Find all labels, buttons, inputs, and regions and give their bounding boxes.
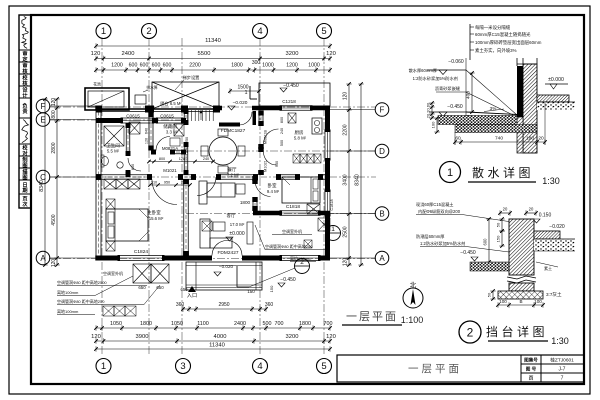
svg-text:4500: 4500 xyxy=(51,214,57,225)
svg-text:隔台 6.5 M²: 隔台 6.5 M² xyxy=(160,100,182,107)
svg-text:主卧室: 主卧室 xyxy=(147,209,161,216)
svg-text:2200: 2200 xyxy=(189,63,201,69)
svg-text:240: 240 xyxy=(280,128,284,134)
svg-text:1: 1 xyxy=(447,167,453,179)
svg-text:950: 950 xyxy=(164,181,170,185)
svg-text:1:2防水砂浆加5%防水剂: 1:2防水砂浆加5%防水剂 xyxy=(413,75,458,82)
svg-text:1050: 1050 xyxy=(171,321,183,327)
svg-text:2400: 2400 xyxy=(234,321,246,327)
svg-text:100mm厚碎砖垫层宽出面层60mm: 100mm厚碎砖垫层宽出面层60mm xyxy=(475,39,542,46)
svg-text:J-7: J-7 xyxy=(559,367,566,373)
svg-text:120: 120 xyxy=(145,138,149,144)
svg-text:150: 150 xyxy=(269,285,274,292)
svg-text:400: 400 xyxy=(466,91,472,99)
svg-text:2: 2 xyxy=(467,326,474,340)
svg-text:C0615: C0615 xyxy=(160,114,174,119)
svg-text:散水厚60mm厚: 散水厚60mm厚 xyxy=(409,67,437,74)
svg-text:240: 240 xyxy=(203,157,209,161)
svg-text:600: 600 xyxy=(483,238,488,246)
svg-text:100: 100 xyxy=(431,121,436,128)
svg-text:每隔一米设分隔缝: 每隔一米设分隔缝 xyxy=(475,24,511,31)
svg-text:−0.450: −0.450 xyxy=(280,277,296,283)
svg-text:950: 950 xyxy=(275,161,279,167)
svg-text:M0821A: M0821A xyxy=(162,146,178,151)
svg-text:120: 120 xyxy=(326,51,336,57)
svg-text:2: 2 xyxy=(300,259,304,266)
svg-text:300: 300 xyxy=(252,60,261,66)
svg-text:桂ZTJ0601: 桂ZTJ0601 xyxy=(550,357,574,364)
svg-text:核: 核 xyxy=(22,67,28,75)
svg-text:C1818: C1818 xyxy=(286,204,300,210)
svg-text:800: 800 xyxy=(280,117,284,123)
svg-text:20: 20 xyxy=(426,108,431,113)
svg-text:650: 650 xyxy=(181,287,189,292)
svg-text:素土: 素土 xyxy=(544,265,552,271)
svg-text:3.3 M²: 3.3 M² xyxy=(166,130,179,135)
svg-text:60mm厚C15混凝土随捣随光: 60mm厚C15混凝土随捣随光 xyxy=(475,31,531,38)
svg-text:3900: 3900 xyxy=(136,334,149,340)
svg-text:计: 计 xyxy=(22,91,28,99)
svg-text:8340: 8340 xyxy=(355,174,361,186)
svg-text:对: 对 xyxy=(22,149,28,157)
svg-text:240: 240 xyxy=(181,181,187,185)
svg-text:100: 100 xyxy=(499,299,507,304)
svg-text:4: 4 xyxy=(257,361,262,372)
svg-text:5500: 5500 xyxy=(198,51,211,57)
svg-text:0.150: 0.150 xyxy=(539,213,552,219)
svg-text:图集号: 图集号 xyxy=(524,357,538,364)
svg-text:1100: 1100 xyxy=(197,321,209,327)
svg-text:1200: 1200 xyxy=(111,63,123,69)
svg-text:1800: 1800 xyxy=(140,321,152,327)
svg-text:3:7灰土: 3:7灰土 xyxy=(546,291,562,298)
svg-text:1:30: 1:30 xyxy=(551,336,569,346)
svg-text:20: 20 xyxy=(503,207,508,212)
svg-text:2950: 2950 xyxy=(218,302,229,308)
svg-text:D: D xyxy=(379,147,385,156)
svg-text:核: 核 xyxy=(22,79,28,87)
svg-text:3400: 3400 xyxy=(343,174,349,185)
svg-text:1:100: 1:100 xyxy=(401,315,424,325)
svg-text:次: 次 xyxy=(22,200,28,208)
svg-text:−0.060: −0.060 xyxy=(448,59,464,65)
svg-text:C1818: C1818 xyxy=(330,199,334,210)
svg-text:17.0 M²: 17.0 M² xyxy=(230,222,245,227)
svg-text:20: 20 xyxy=(426,113,431,118)
svg-text:700: 700 xyxy=(324,321,333,327)
svg-text:740: 740 xyxy=(495,136,503,142)
svg-text:离地100mm: 离地100mm xyxy=(57,289,79,295)
svg-text:C0615: C0615 xyxy=(126,114,140,119)
svg-text:650: 650 xyxy=(156,285,164,290)
svg-text:20: 20 xyxy=(529,207,534,212)
svg-text:防潮层60mm厚: 防潮层60mm厚 xyxy=(416,233,444,240)
svg-text:600: 600 xyxy=(140,63,149,69)
svg-text:1: 1 xyxy=(101,26,106,37)
svg-text:60: 60 xyxy=(426,102,431,107)
svg-text:600: 600 xyxy=(129,63,138,69)
svg-text:图: 图 xyxy=(22,173,27,181)
svg-text:500: 500 xyxy=(263,321,272,327)
svg-text:150: 150 xyxy=(496,235,501,242)
svg-text:期: 期 xyxy=(22,186,27,194)
svg-text:责: 责 xyxy=(22,107,27,115)
svg-text:5.5 M²: 5.5 M² xyxy=(107,149,120,154)
svg-text:800: 800 xyxy=(51,110,57,119)
svg-text:离地100mm: 离地100mm xyxy=(57,308,79,314)
svg-text:7: 7 xyxy=(561,376,564,382)
svg-text:−0.020: −0.020 xyxy=(233,100,248,106)
svg-text:−0.020: −0.020 xyxy=(219,264,234,269)
svg-text:A: A xyxy=(40,254,46,263)
svg-text:120: 120 xyxy=(51,259,57,268)
svg-text:50: 50 xyxy=(487,292,492,297)
svg-text:500: 500 xyxy=(280,140,284,146)
svg-text:2800: 2800 xyxy=(51,142,57,153)
svg-text:图: 图 xyxy=(22,161,27,169)
svg-text:2400: 2400 xyxy=(122,51,135,57)
svg-text:8340: 8340 xyxy=(39,180,45,192)
svg-text:11340: 11340 xyxy=(209,343,225,349)
svg-text:M1021: M1021 xyxy=(264,160,268,172)
svg-text:素土夯实，向外坡3%: 素土夯实，向外坡3% xyxy=(475,47,517,54)
svg-text:120: 120 xyxy=(91,334,101,340)
svg-text:梯步设置: 梯步设置 xyxy=(183,74,200,81)
svg-text:±0.000: ±0.000 xyxy=(548,77,564,83)
svg-text:客厅: 客厅 xyxy=(227,212,236,219)
svg-text:180: 180 xyxy=(526,136,534,142)
svg-text:150: 150 xyxy=(247,289,255,294)
svg-text:1: 1 xyxy=(331,226,335,233)
svg-text:1200: 1200 xyxy=(286,63,298,69)
svg-text:4: 4 xyxy=(257,26,262,37)
svg-text:FDM2427: FDM2427 xyxy=(217,250,238,256)
svg-text:1000: 1000 xyxy=(262,63,274,69)
svg-text:5: 5 xyxy=(321,26,326,37)
svg-text:3: 3 xyxy=(180,361,185,372)
svg-text:空调管洞Φ80 距中高地250: 空调管洞Φ80 距中高地250 xyxy=(57,298,105,304)
svg-text:B: B xyxy=(519,299,522,304)
svg-text:花池: 花池 xyxy=(93,82,101,87)
svg-text:4000: 4000 xyxy=(214,334,227,340)
svg-text:−0.450: −0.450 xyxy=(460,250,476,256)
svg-text:1050: 1050 xyxy=(110,321,122,327)
svg-text:1: 1 xyxy=(101,361,106,372)
svg-text:3200: 3200 xyxy=(286,334,299,340)
svg-text:内配Φ6纵筋双向@200: 内配Φ6纵筋双向@200 xyxy=(418,208,461,215)
svg-text:−0.450: −0.450 xyxy=(447,104,463,110)
svg-text:11340: 11340 xyxy=(205,38,221,44)
svg-text:C1218: C1218 xyxy=(282,99,296,104)
svg-text:空调室外机: 空调室外机 xyxy=(282,228,302,234)
svg-text:120: 120 xyxy=(343,258,349,267)
svg-text:1420: 1420 xyxy=(185,147,189,155)
svg-text:250: 250 xyxy=(185,137,189,143)
svg-text:±0.000: ±0.000 xyxy=(229,231,244,237)
svg-text:800: 800 xyxy=(159,157,165,161)
svg-text:20: 20 xyxy=(538,136,544,142)
svg-text:600: 600 xyxy=(152,63,161,69)
svg-text:15.6 M²: 15.6 M² xyxy=(149,216,164,221)
svg-text:定: 定 xyxy=(21,55,28,63)
svg-text:北: 北 xyxy=(410,281,417,289)
svg-text:A: A xyxy=(379,254,385,263)
svg-text:入口: 入口 xyxy=(187,292,197,299)
svg-text:50: 50 xyxy=(496,222,501,227)
svg-text:360: 360 xyxy=(265,302,274,308)
svg-text:1800: 1800 xyxy=(299,321,311,327)
svg-text:一层平面: 一层平面 xyxy=(346,310,398,323)
svg-text:1280: 1280 xyxy=(179,157,187,161)
svg-text:现浇60厚C15混凝土: 现浇60厚C15混凝土 xyxy=(416,201,453,208)
svg-text:一层平面: 一层平面 xyxy=(408,363,462,375)
svg-text:640: 640 xyxy=(145,128,149,134)
svg-text:F: F xyxy=(380,105,385,114)
svg-text:3200: 3200 xyxy=(286,51,299,57)
svg-text:空调室外机: 空调室外机 xyxy=(103,270,123,276)
svg-text:卧室: 卧室 xyxy=(268,182,277,189)
svg-text:2500: 2500 xyxy=(343,226,349,237)
svg-text:5.8 M²: 5.8 M² xyxy=(294,136,307,141)
svg-text:9.4 M²: 9.4 M² xyxy=(267,189,280,194)
svg-text:100: 100 xyxy=(534,299,542,304)
svg-text:120: 120 xyxy=(326,334,336,340)
svg-text:2200: 2200 xyxy=(343,124,349,135)
svg-text:空调管洞Φ80 距中高地2500: 空调管洞Φ80 距中高地2500 xyxy=(57,279,107,285)
svg-text:1000: 1000 xyxy=(308,63,320,69)
svg-text:空调管洞Φ80 距中高地250: 空调管洞Φ80 距中高地250 xyxy=(265,243,313,249)
svg-text:1: 1 xyxy=(244,90,247,96)
svg-text:图 号: 图 号 xyxy=(526,366,537,373)
svg-text:B: B xyxy=(379,209,384,218)
svg-text:1800: 1800 xyxy=(231,63,243,69)
svg-text:挡台详图: 挡台详图 xyxy=(486,324,548,339)
svg-text:M1021: M1021 xyxy=(163,168,177,173)
svg-text:60: 60 xyxy=(455,136,461,142)
svg-text:7.2 M²: 7.2 M² xyxy=(227,173,240,178)
svg-text:C1824: C1824 xyxy=(134,249,148,255)
svg-text:沥青砂浆嵌缝: 沥青砂浆嵌缝 xyxy=(435,85,461,92)
svg-text:120: 120 xyxy=(51,98,57,107)
svg-text:600: 600 xyxy=(163,63,172,69)
svg-text:120: 120 xyxy=(91,51,101,57)
svg-text:700: 700 xyxy=(275,321,284,327)
svg-text:360: 360 xyxy=(176,302,185,308)
svg-text:散水详图: 散水详图 xyxy=(472,165,534,180)
svg-text:页: 页 xyxy=(529,375,534,382)
svg-text:1:30: 1:30 xyxy=(542,176,560,186)
svg-text:5: 5 xyxy=(321,361,326,372)
svg-text:−0.020: −0.020 xyxy=(549,224,565,230)
svg-text:1:2防水砂浆加5%防水剂: 1:2防水砂浆加5%防水剂 xyxy=(420,240,465,247)
svg-text:120: 120 xyxy=(343,92,349,101)
svg-text:2: 2 xyxy=(146,26,151,37)
svg-text:1800: 1800 xyxy=(240,200,251,205)
